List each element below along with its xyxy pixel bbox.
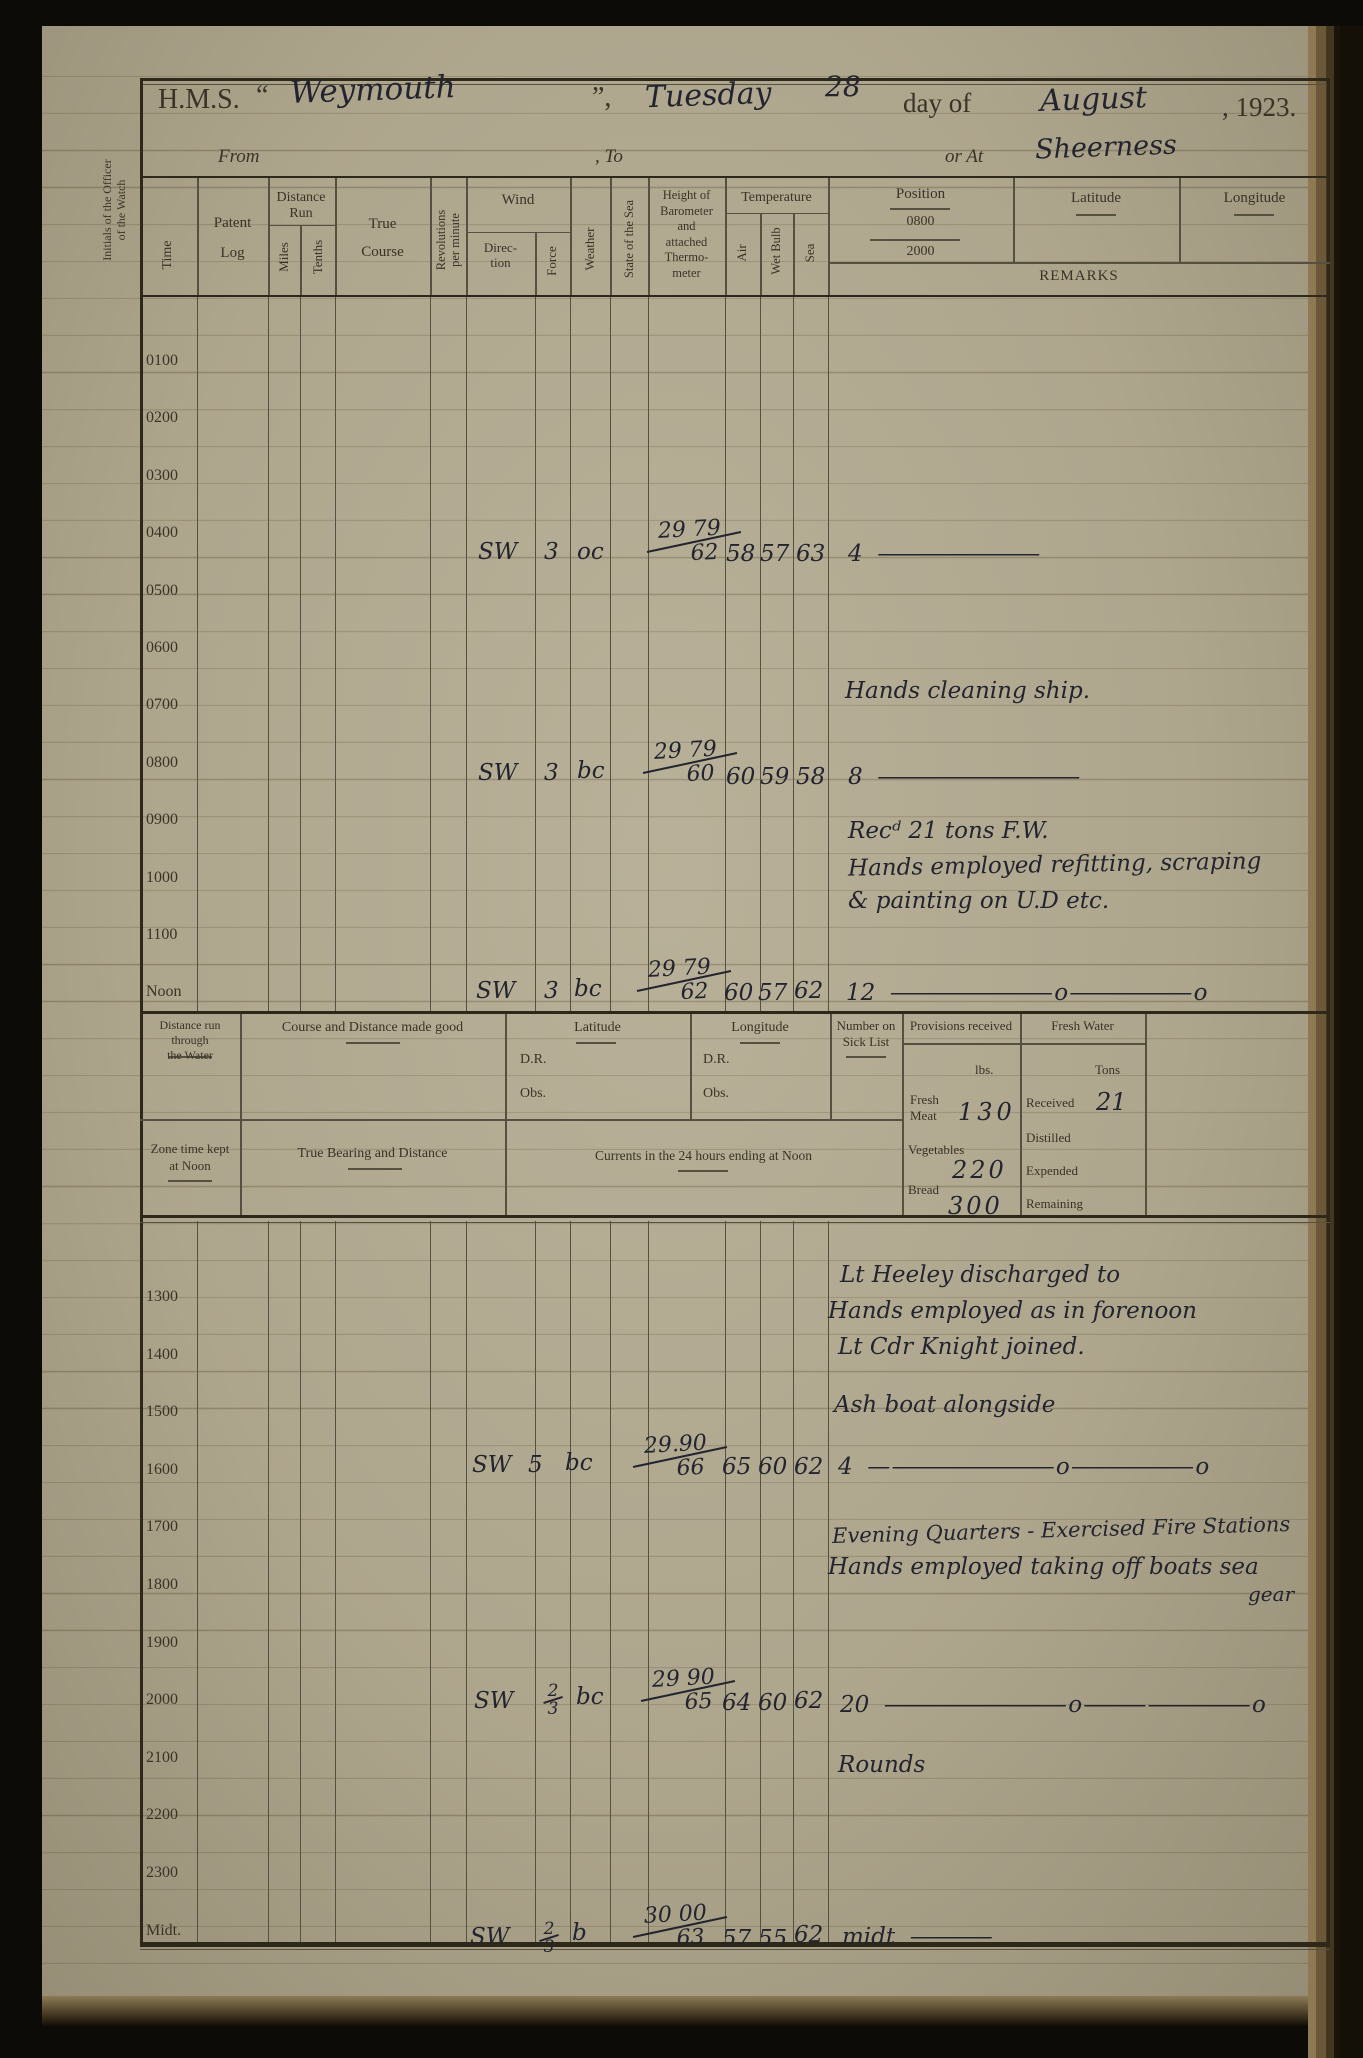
time-label: 0200 bbox=[146, 409, 196, 427]
col-patent-log: Patent Log bbox=[199, 208, 266, 268]
scan-border-top bbox=[0, 0, 1363, 26]
summary-sick-list: Number on Sick List bbox=[830, 1018, 902, 1050]
margin-note-line1: Initials of the Officer bbox=[100, 159, 114, 260]
time-label: 1700 bbox=[146, 1518, 196, 1536]
wind-direction-value: SW bbox=[478, 760, 517, 786]
rule-line bbox=[300, 225, 302, 295]
time-label: 1900 bbox=[146, 1634, 196, 1652]
temp-sea-value: 58 bbox=[796, 764, 825, 790]
rule-line bbox=[890, 208, 950, 210]
fresh-water-title: Fresh Water bbox=[1020, 1018, 1145, 1034]
rule-line bbox=[828, 295, 829, 1011]
rule-line bbox=[570, 1221, 571, 1945]
place-handwritten: Sheerness bbox=[1035, 130, 1178, 166]
remark-stroke: ———————— bbox=[877, 541, 1037, 567]
fresh-meat-label: Fresh Meat bbox=[910, 1092, 939, 1124]
rule-line bbox=[268, 1221, 269, 1945]
hms-label: H.M.S. bbox=[158, 84, 240, 116]
col-temp-air: Air bbox=[735, 233, 749, 273]
rule-line bbox=[828, 262, 1330, 264]
baro-line2: Barometer bbox=[660, 204, 713, 218]
time-label: Midt. bbox=[146, 1922, 196, 1940]
col-miles: Miles bbox=[277, 232, 291, 282]
year-label: , 1923. bbox=[1222, 92, 1296, 123]
scan-border-left bbox=[0, 0, 42, 2058]
rule-line bbox=[1145, 1011, 1147, 1215]
rule-line bbox=[725, 213, 828, 214]
true-line2: Course bbox=[361, 244, 404, 260]
summary-latitude: Latitude bbox=[505, 1020, 690, 1036]
rule-line bbox=[140, 1119, 902, 1121]
time-label: 1300 bbox=[146, 1288, 196, 1306]
rule-line bbox=[140, 1215, 1330, 1218]
weather-value: bc bbox=[565, 1450, 593, 1476]
remark-stroke: — ———————— o —————— o bbox=[867, 1454, 1206, 1480]
weather-value: bc bbox=[574, 976, 602, 1002]
summary-currents: Currents in the 24 hours ending at Noon bbox=[505, 1148, 902, 1164]
baro-line5: Thermo- bbox=[665, 250, 709, 264]
rule-line bbox=[576, 1042, 616, 1044]
rule-line bbox=[1234, 214, 1274, 216]
rule-line bbox=[140, 295, 1330, 297]
rule-line bbox=[466, 295, 467, 1011]
time-label: 0600 bbox=[146, 639, 196, 657]
baro-line3: and bbox=[677, 219, 695, 233]
rule-line bbox=[335, 1221, 336, 1945]
margin-note: Initials of the Officer of the Watch bbox=[100, 124, 128, 296]
distance-water-line1: Distance run through bbox=[160, 1018, 221, 1047]
remark-number: 4 ———————— bbox=[848, 541, 1037, 567]
rule-line bbox=[648, 1221, 649, 1945]
open-quote: “ bbox=[256, 80, 268, 112]
remark-line: Lt Heeley discharged to bbox=[840, 1262, 1120, 1288]
time-label: 0700 bbox=[146, 696, 196, 714]
close-quote: ”, bbox=[592, 82, 611, 114]
temp-wet-value: 55 bbox=[758, 1926, 787, 1952]
remaining-label: Remaining bbox=[1026, 1196, 1083, 1212]
rule-line bbox=[793, 213, 795, 295]
summary-course-made-good: Course and Distance made good bbox=[240, 1020, 505, 1036]
remark-line: Lt Cdr Knight joined. bbox=[838, 1334, 1085, 1360]
baro-line1: Height of bbox=[663, 188, 711, 202]
rule-line bbox=[535, 1221, 536, 1945]
wind-force-value: 3 bbox=[544, 539, 559, 565]
temp-sea-value: 62 bbox=[794, 1922, 823, 1948]
sick-list-line2: Sick List bbox=[843, 1034, 890, 1049]
temp-wet-value: 60 bbox=[758, 1690, 787, 1716]
patent-line1: Patent bbox=[214, 215, 252, 231]
direction-line1: Direc- bbox=[484, 240, 517, 255]
book-bottom-edge bbox=[42, 1996, 1308, 2026]
temp-air-value: 60 bbox=[726, 764, 755, 790]
fresh-line2: Meat bbox=[910, 1108, 937, 1123]
rule-line bbox=[648, 295, 649, 1011]
col-longitude: Longitude bbox=[1179, 190, 1330, 207]
rule-line bbox=[268, 295, 269, 1011]
rule-line bbox=[1076, 214, 1116, 216]
col-revolutions: Revolutions per minute bbox=[434, 184, 462, 296]
temp-air-value: 64 bbox=[722, 1690, 751, 1716]
longitude-obs: Obs. bbox=[703, 1086, 729, 1102]
remark-text: midt bbox=[842, 1924, 895, 1950]
col-time: Time bbox=[161, 225, 175, 285]
remark-line: Ash boat alongside bbox=[834, 1392, 1055, 1418]
barometer-value: 29.90 66 bbox=[627, 1431, 733, 1482]
bread-value: 300 bbox=[948, 1192, 1003, 1220]
barometer-value: 30 00 63 bbox=[627, 1901, 733, 1952]
time-label: 1000 bbox=[146, 869, 196, 887]
remark-number: 4 — ———————— o —————— o bbox=[838, 1454, 1206, 1480]
zone-line1: Zone time kept bbox=[151, 1141, 230, 1156]
expended-label: Expended bbox=[1026, 1163, 1078, 1179]
rule-line bbox=[348, 1168, 402, 1170]
barometer-top: 29 79 bbox=[637, 517, 742, 544]
col-wind-direction: Direc- tion bbox=[466, 240, 535, 270]
wind-direction-value: SW bbox=[478, 539, 517, 565]
vegetables-value: 220 bbox=[952, 1156, 1007, 1184]
distilled-label: Distilled bbox=[1026, 1130, 1071, 1146]
to-label: , To bbox=[595, 146, 623, 168]
remark-stroke: ———— bbox=[910, 1924, 990, 1950]
distance-water-line2: the Water bbox=[167, 1048, 213, 1062]
month-handwritten: August bbox=[1039, 80, 1147, 119]
time-label: 0400 bbox=[146, 524, 196, 542]
rule-line bbox=[760, 295, 761, 1011]
rule-line bbox=[505, 1011, 507, 1215]
rule-line bbox=[678, 1170, 728, 1172]
time-label: 2000 bbox=[146, 1691, 196, 1709]
col-barometer: Height of Barometer and attached Thermo-… bbox=[648, 188, 725, 281]
col-state-of-sea: State of the Sea bbox=[622, 184, 636, 294]
rule-line bbox=[140, 1011, 1330, 1014]
rule-line bbox=[610, 295, 611, 1011]
rule-line bbox=[1020, 1011, 1022, 1215]
summary-distance-water: Distance run through the Water bbox=[142, 1018, 238, 1063]
zone-line2: at Noon bbox=[169, 1158, 211, 1173]
received-value: 21 bbox=[1096, 1088, 1127, 1116]
col-distance-run: Distance Run bbox=[266, 190, 336, 222]
rule-line bbox=[760, 1221, 761, 1945]
rule-line bbox=[902, 1011, 904, 1215]
revolutions-line1: Revolutions bbox=[434, 210, 448, 270]
time-label: Noon bbox=[146, 983, 196, 1001]
summary-true-bearing: True Bearing and Distance bbox=[240, 1146, 505, 1162]
temp-wet-value: 57 bbox=[758, 980, 787, 1006]
remark-line: Recᵈ 21 tons F.W. bbox=[848, 818, 1049, 844]
temp-sea-value: 62 bbox=[794, 978, 823, 1004]
fresh-line1: Fresh bbox=[910, 1092, 939, 1107]
col-wind: Wind bbox=[466, 192, 570, 209]
time-label: 0500 bbox=[146, 582, 196, 600]
rule-line bbox=[828, 1221, 829, 1945]
wind-force-value: 5 bbox=[528, 1452, 543, 1478]
temp-wet-value: 57 bbox=[760, 541, 789, 567]
remark-line: Hands cleaning ship. bbox=[845, 678, 1090, 704]
rule-line bbox=[902, 1043, 1145, 1045]
day-number-handwritten: 28 bbox=[825, 70, 861, 103]
rule-line bbox=[725, 295, 726, 1011]
position-2000: 2000 bbox=[828, 244, 1013, 260]
rule-line bbox=[430, 295, 431, 1011]
time-label: 1100 bbox=[146, 926, 196, 944]
rule-line bbox=[346, 1042, 400, 1044]
col-true-course: True Course bbox=[337, 210, 428, 266]
rule-line bbox=[168, 1180, 212, 1182]
rule-line bbox=[1179, 176, 1181, 262]
rule-line bbox=[535, 295, 536, 1011]
patent-line2: Log bbox=[220, 245, 244, 261]
rule-line bbox=[466, 232, 570, 233]
latitude-dr: D.R. bbox=[520, 1052, 546, 1068]
rule-line bbox=[268, 225, 335, 226]
sick-list-line1: Number on bbox=[837, 1018, 896, 1033]
time-label: 0300 bbox=[146, 467, 196, 485]
time-label: 0800 bbox=[146, 754, 196, 772]
remark-text: 4 bbox=[848, 541, 863, 567]
or-at-label: or At bbox=[945, 146, 983, 168]
remark-line: Rounds bbox=[838, 1752, 925, 1778]
revolutions-line2: per minute bbox=[448, 213, 462, 267]
rule-line bbox=[197, 1221, 198, 1945]
true-line1: True bbox=[369, 216, 397, 232]
wind-direction-value: SW bbox=[472, 1452, 511, 1478]
remark-number: 12 ———————— o —————— o bbox=[846, 980, 1205, 1006]
time-label: 0100 bbox=[146, 352, 196, 370]
rule-line bbox=[300, 1221, 301, 1945]
wind-force-value: 3 bbox=[544, 760, 559, 786]
weather-value: bc bbox=[576, 1684, 604, 1710]
scan-border-right bbox=[1340, 0, 1363, 2058]
rule-line bbox=[793, 295, 794, 1011]
remark-line: & painting on U.D etc. bbox=[848, 888, 1109, 914]
remark-line: Hands employed as in forenoon bbox=[828, 1298, 1197, 1324]
time-label: 1400 bbox=[146, 1346, 196, 1364]
latitude-obs: Obs. bbox=[520, 1086, 546, 1102]
rule-line bbox=[570, 176, 572, 295]
remark-text: 12 bbox=[846, 980, 875, 1006]
remark-number: 20 ————————— o ——— ————— o bbox=[840, 1692, 1263, 1718]
rule-line bbox=[725, 1221, 726, 1945]
rule-line bbox=[140, 176, 1330, 178]
barometer-top: 29.90 bbox=[623, 1432, 728, 1459]
baro-line4: attached bbox=[666, 235, 708, 249]
bread-label: Bread bbox=[908, 1182, 939, 1198]
from-label: From bbox=[218, 146, 260, 168]
col-temp-wet-bulb: Wet Bulb bbox=[769, 216, 783, 286]
wind-force-value: 3 bbox=[544, 978, 559, 1004]
remark-text: 20 bbox=[840, 1692, 869, 1718]
baro-line6: meter bbox=[672, 266, 700, 280]
received-label: Received bbox=[1026, 1095, 1074, 1111]
remark-number: midt ———— bbox=[842, 1924, 990, 1950]
remark-stroke: ———————— o —————— o bbox=[890, 980, 1205, 1006]
direction-line2: tion bbox=[490, 255, 510, 270]
temp-wet-value: 59 bbox=[760, 764, 789, 790]
time-label: 1500 bbox=[146, 1403, 196, 1421]
fresh-water-tons: Tons bbox=[1095, 1062, 1120, 1078]
ship-name-handwritten: Weymouth bbox=[289, 69, 456, 111]
summary-zone-time: Zone time kept at Noon bbox=[142, 1140, 238, 1174]
wind-direction-value: SW bbox=[476, 978, 515, 1004]
rule-line bbox=[197, 295, 198, 1011]
barometer-top: 29 79 bbox=[633, 738, 738, 765]
time-label: 1800 bbox=[146, 1576, 196, 1594]
rule-line bbox=[570, 295, 571, 1011]
temp-wet-value: 60 bbox=[758, 1454, 787, 1480]
col-latitude: Latitude bbox=[1013, 190, 1179, 207]
temp-sea-value: 62 bbox=[794, 1454, 823, 1480]
time-label: 2200 bbox=[146, 1806, 196, 1824]
temp-sea-value: 63 bbox=[796, 541, 825, 567]
wind-force-value: 2 3 bbox=[536, 1922, 562, 1954]
remark-line: gear bbox=[1248, 1582, 1294, 1606]
weather-value: bc bbox=[577, 758, 605, 784]
rule-line bbox=[466, 1221, 467, 1945]
col-tenths: Tenths bbox=[311, 229, 325, 285]
time-label: 1600 bbox=[146, 1461, 196, 1479]
weather-value: oc bbox=[577, 539, 604, 565]
temp-air-value: 65 bbox=[722, 1454, 751, 1480]
barometer-value: 29 79 62 bbox=[631, 955, 737, 1006]
rule-line bbox=[335, 295, 336, 1011]
remark-line: Hands employed taking off boats sea bbox=[828, 1554, 1259, 1580]
rule-line bbox=[430, 1221, 431, 1945]
provisions-lbs: lbs. bbox=[975, 1062, 993, 1078]
rule-line bbox=[1013, 176, 1015, 262]
barometer-top: 29 90 bbox=[631, 1666, 736, 1693]
rule-line bbox=[300, 295, 301, 1011]
rule-line bbox=[760, 213, 762, 295]
rule-line bbox=[610, 176, 612, 295]
rule-line bbox=[740, 1042, 780, 1044]
rule-line bbox=[140, 1222, 1330, 1223]
weather-value: b bbox=[572, 1920, 587, 1946]
provisions-title: Provisions received bbox=[902, 1018, 1020, 1034]
rule-line bbox=[240, 1011, 242, 1215]
remark-stroke: ————————— o ——— ————— o bbox=[884, 1692, 1263, 1718]
position-0800: 0800 bbox=[828, 214, 1013, 230]
wind-force-value: 2 3 bbox=[540, 1684, 566, 1716]
col-remarks: REMARKS bbox=[828, 268, 1330, 285]
col-weather: Weather bbox=[583, 214, 597, 284]
time-label: 2300 bbox=[146, 1864, 196, 1882]
rule-line bbox=[793, 1221, 794, 1945]
rule-line bbox=[846, 1056, 886, 1058]
scanned-logbook-page: Initials of the Officer of the Watch H.M… bbox=[0, 0, 1363, 2058]
time-label: 2100 bbox=[146, 1749, 196, 1767]
rule-line bbox=[535, 232, 537, 295]
wind-direction-value: SW bbox=[474, 1688, 513, 1714]
barometer-top: 29 79 bbox=[627, 956, 732, 983]
summary-longitude: Longitude bbox=[690, 1020, 830, 1036]
rule-line bbox=[430, 176, 432, 295]
wind-direction-value: SW bbox=[470, 1924, 509, 1950]
time-label: 0900 bbox=[146, 811, 196, 829]
remark-text: 8 bbox=[848, 764, 863, 790]
barometer-top: 30 00 bbox=[623, 1902, 728, 1929]
longitude-dr: D.R. bbox=[703, 1052, 729, 1068]
weekday-handwritten: Tuesday bbox=[644, 76, 772, 115]
col-wind-force: Force bbox=[545, 236, 559, 286]
fresh-meat-value: 130 bbox=[958, 1098, 1016, 1126]
temp-air-value: 60 bbox=[724, 980, 753, 1006]
col-position: Position bbox=[828, 186, 1013, 203]
col-temp-sea: Sea bbox=[803, 233, 817, 273]
margin-note-line2: of the Watch bbox=[114, 180, 128, 241]
day-of-label: day of bbox=[903, 88, 971, 119]
remark-number: 8 —————————— bbox=[848, 764, 1077, 790]
remark-text: 4 bbox=[838, 1454, 853, 1480]
rule-line bbox=[870, 239, 960, 241]
col-temperature: Temperature bbox=[725, 190, 828, 206]
rule-line bbox=[610, 1221, 611, 1945]
temp-air-value: 57 bbox=[722, 1926, 751, 1952]
remark-stroke: —————————— bbox=[877, 764, 1077, 790]
temp-air-value: 58 bbox=[726, 541, 755, 567]
temp-sea-value: 62 bbox=[794, 1688, 823, 1714]
